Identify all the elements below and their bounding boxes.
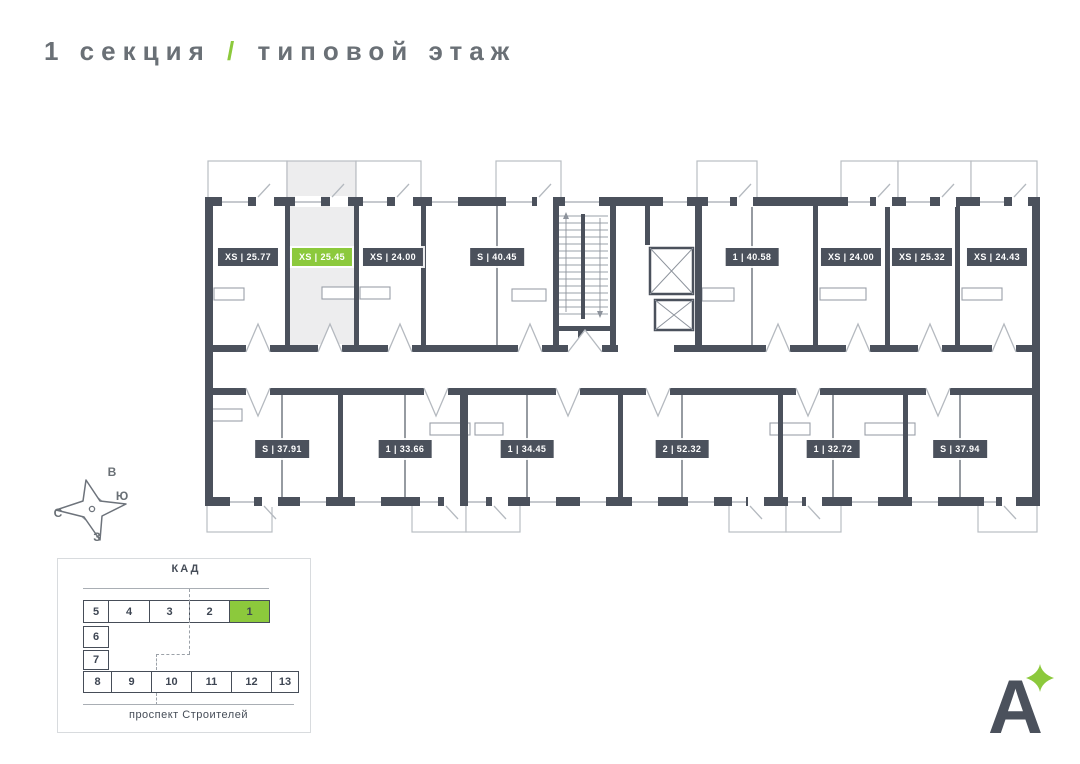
apartment-badge-xs-25-32[interactable]: XS | 25.32	[892, 248, 952, 266]
minimap-section-10[interactable]: 10	[151, 671, 192, 693]
top-balconies	[208, 161, 1037, 201]
minimap-section-5[interactable]: 5	[83, 600, 109, 623]
compass-west-label: З	[93, 530, 101, 544]
apartment-badge-xs-24-43[interactable]: XS | 24.43	[967, 248, 1027, 266]
minimap-section-3[interactable]: 3	[149, 600, 190, 623]
minimap-section-8[interactable]: 8	[83, 671, 112, 693]
minimap-section-1-active[interactable]: 1	[229, 600, 270, 623]
compass-south-label: Ю	[116, 489, 128, 503]
minimap-section-6[interactable]: 6	[83, 626, 109, 648]
minimap-section-11[interactable]: 11	[191, 671, 232, 693]
minimap-section-7[interactable]: 7	[83, 650, 109, 670]
highlighted-apartment-balcony	[287, 161, 356, 201]
bottom-balconies	[207, 505, 1037, 532]
minimap-section-13[interactable]: 13	[271, 671, 299, 693]
apartment-badge-1-40-58[interactable]: 1 | 40.58	[726, 248, 779, 266]
site-minimap: КАД 5 4 3 2 1 6 7 8 9 10 11 12 13 проспе…	[57, 558, 311, 733]
apartment-badge-s-40-45[interactable]: S | 40.45	[470, 248, 524, 266]
road-line-top	[83, 588, 269, 589]
balcony-door-swings-bottom	[264, 506, 1016, 519]
minimap-dashed-line	[156, 654, 190, 655]
road-label-prospekt-stroiteley: проспект Строителей	[83, 709, 294, 721]
elevator-shafts	[650, 248, 693, 330]
road-line-bottom	[83, 704, 294, 705]
apartment-badge-s-37-94[interactable]: S | 37.94	[933, 440, 987, 458]
minimap-dashed-line	[156, 654, 157, 670]
apartment-badge-1-34-45[interactable]: 1 | 34.45	[501, 440, 554, 458]
apartment-badge-xs-25-77[interactable]: XS | 25.77	[218, 248, 278, 266]
road-label-kad: КАД	[93, 563, 279, 575]
minimap-section-12[interactable]: 12	[231, 671, 272, 693]
minimap-section-4[interactable]: 4	[108, 600, 150, 623]
apartment-badge-2-52-32[interactable]: 2 | 52.32	[656, 440, 709, 458]
apartment-badge-xs-25-45-selected[interactable]: XS | 25.45	[292, 248, 352, 266]
apartment-badge-s-37-91[interactable]: S | 37.91	[255, 440, 309, 458]
entry-doors	[246, 324, 1016, 416]
compass-east-label: В	[108, 465, 117, 479]
minimap-section-2[interactable]: 2	[189, 600, 230, 623]
minimap-section-9[interactable]: 9	[111, 671, 152, 693]
compass-north-label: С	[54, 506, 63, 520]
minimap-dashed-line	[189, 589, 190, 654]
apartment-badge-1-32-72[interactable]: 1 | 32.72	[807, 440, 860, 458]
apartment-badge-xs-24-00-a[interactable]: XS | 24.00	[363, 248, 423, 266]
apartment-badge-xs-24-00-b[interactable]: XS | 24.00	[821, 248, 881, 266]
apartment-badge-1-33-66[interactable]: 1 | 33.66	[379, 440, 432, 458]
highlighted-apartment-room[interactable]	[287, 200, 356, 348]
logo-sparkle-icon	[1026, 664, 1054, 692]
